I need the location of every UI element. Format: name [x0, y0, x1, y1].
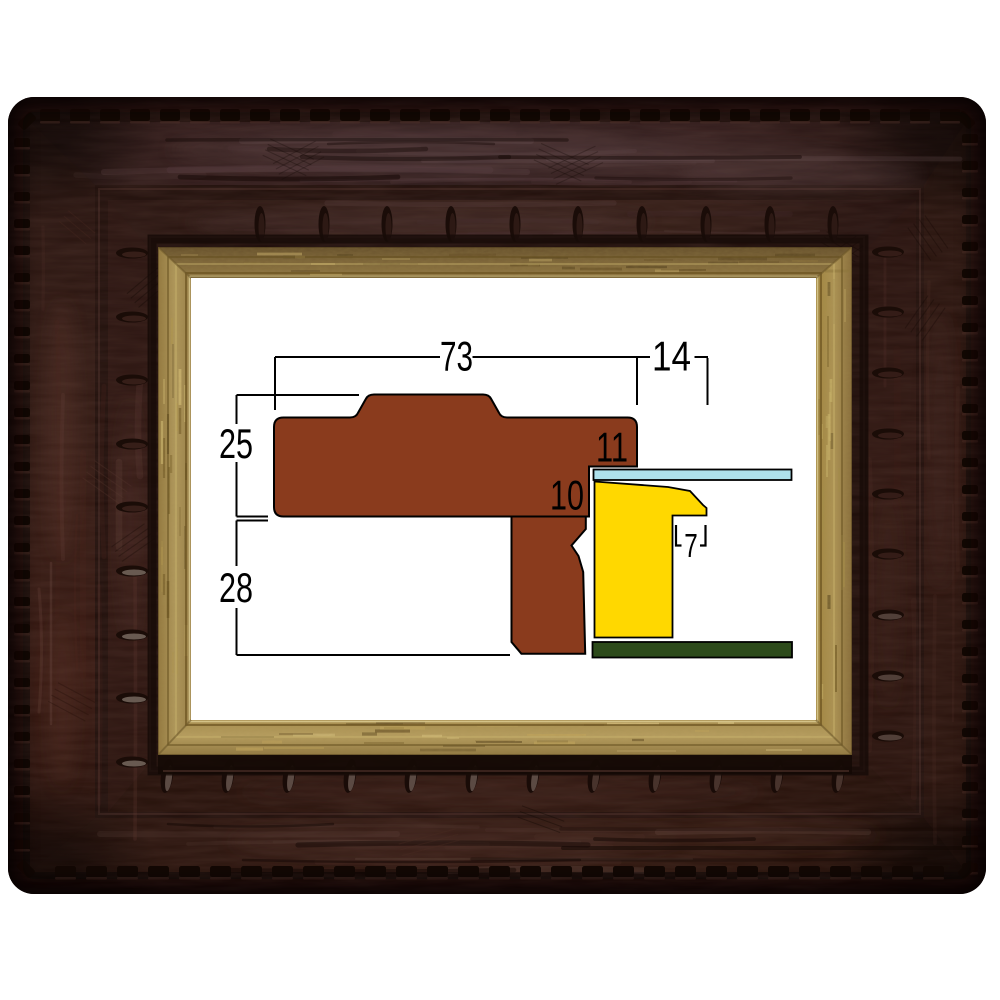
svg-text:11: 11 — [596, 424, 628, 471]
svg-text:7: 7 — [684, 528, 698, 565]
svg-text:25: 25 — [219, 420, 253, 467]
svg-text:73: 73 — [440, 333, 473, 380]
svg-text:10: 10 — [550, 472, 584, 519]
svg-text:14: 14 — [652, 333, 691, 380]
svg-text:28: 28 — [219, 564, 253, 611]
